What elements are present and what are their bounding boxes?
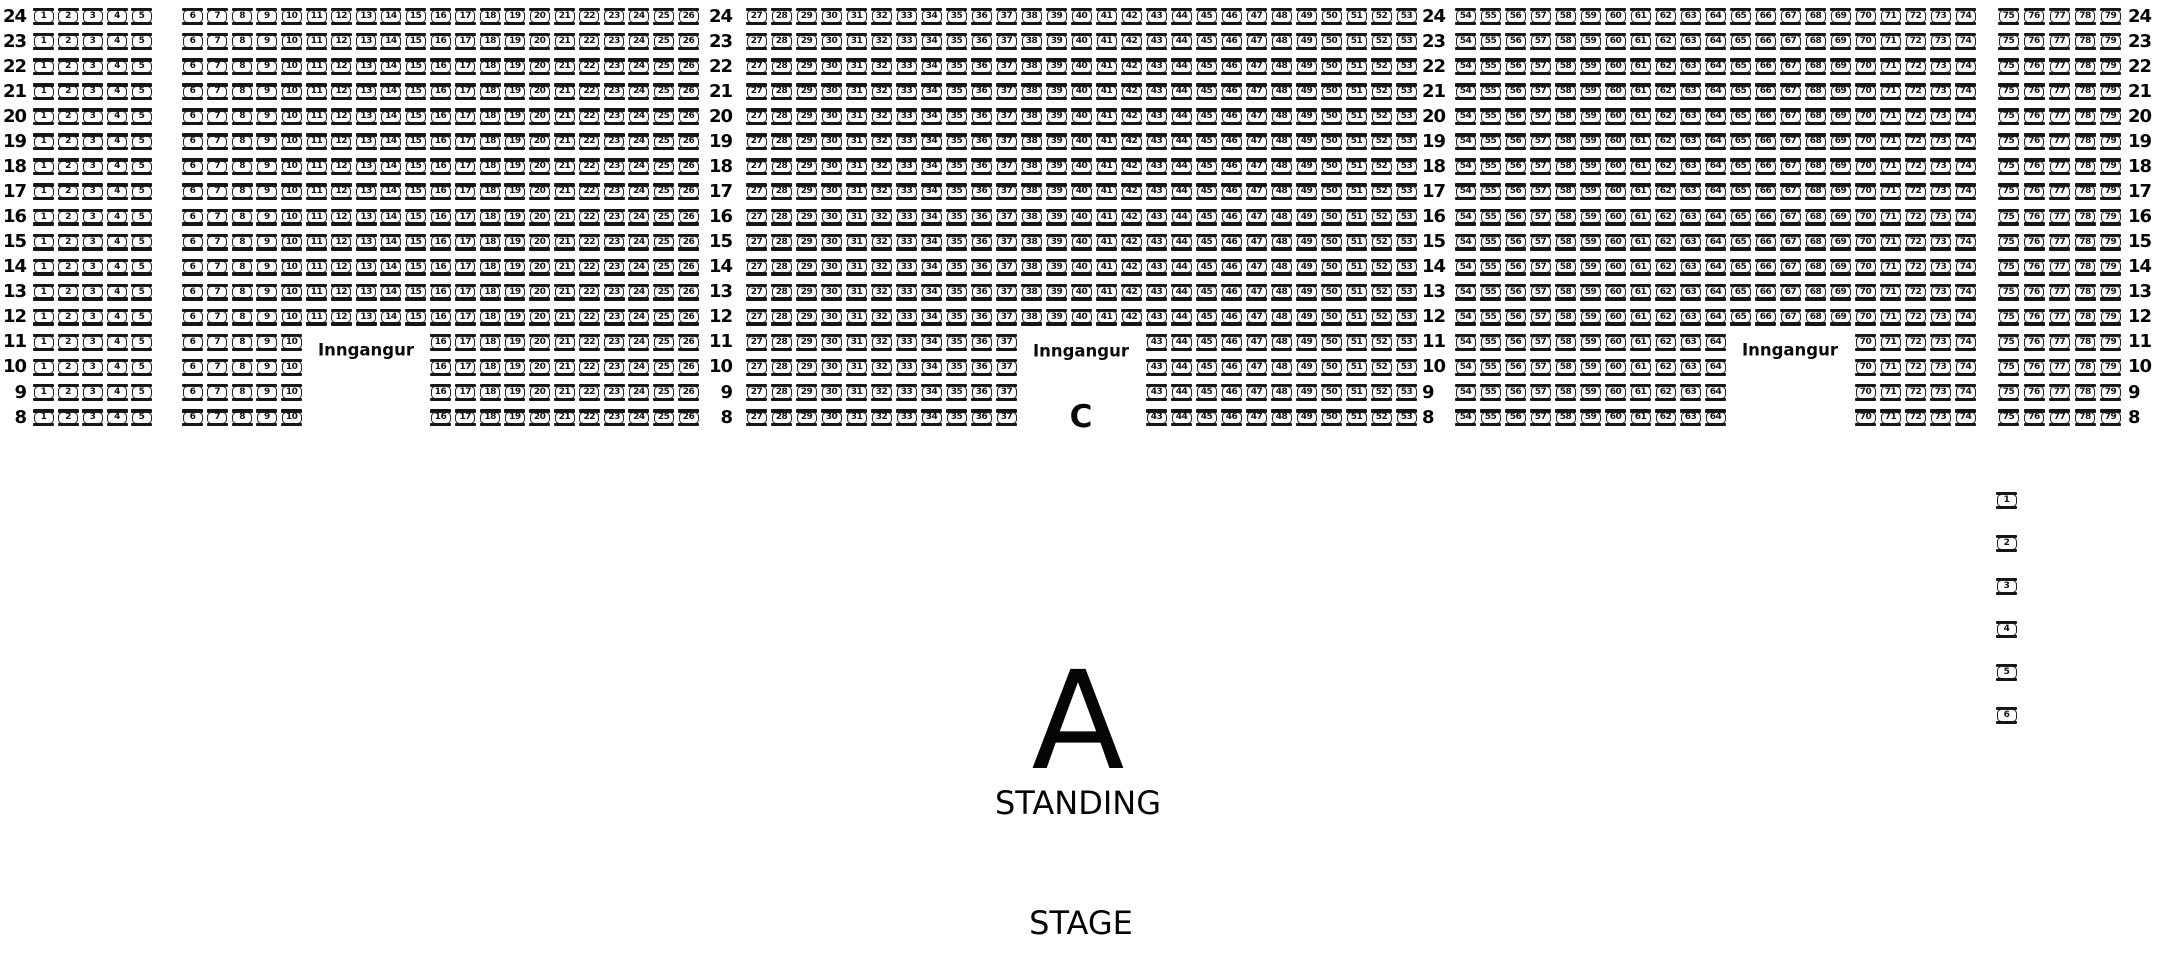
seat[interactable]: 25 <box>653 259 674 276</box>
seat[interactable]: 62 <box>1655 409 1676 426</box>
seat[interactable]: 38 <box>1021 234 1042 251</box>
seat[interactable]: 51 <box>1346 133 1367 150</box>
seat[interactable]: 46 <box>1221 133 1242 150</box>
seat[interactable]: 40 <box>1071 284 1092 301</box>
seat[interactable]: 36 <box>971 409 992 426</box>
seat[interactable]: 18 <box>480 284 501 301</box>
seat[interactable]: 60 <box>1605 33 1626 50</box>
seat[interactable]: 7 <box>207 359 228 376</box>
seat[interactable]: 75 <box>1998 183 2019 200</box>
seat[interactable]: 8 <box>232 284 253 301</box>
seat[interactable]: 26 <box>678 384 699 401</box>
seat[interactable]: 54 <box>1455 158 1476 175</box>
seat[interactable]: 56 <box>1505 384 1526 401</box>
seat[interactable]: 30 <box>821 83 842 100</box>
seat[interactable]: 40 <box>1071 8 1092 25</box>
seat[interactable]: 63 <box>1680 409 1701 426</box>
seat[interactable]: 45 <box>1196 183 1217 200</box>
seat[interactable]: 45 <box>1196 133 1217 150</box>
seat[interactable]: 7 <box>207 83 228 100</box>
seat[interactable]: 49 <box>1296 183 1317 200</box>
seat[interactable]: 62 <box>1655 259 1676 276</box>
seat[interactable]: 48 <box>1271 58 1292 75</box>
seat[interactable]: 20 <box>529 158 550 175</box>
seat[interactable]: 62 <box>1655 33 1676 50</box>
seat[interactable]: 9 <box>256 234 277 251</box>
seat[interactable]: 33 <box>896 309 917 326</box>
seat[interactable]: 35 <box>946 234 967 251</box>
seat[interactable]: 33 <box>896 8 917 25</box>
seat[interactable]: 72 <box>1905 108 1926 125</box>
seat[interactable]: 74 <box>1955 8 1976 25</box>
seat[interactable]: 17 <box>455 158 476 175</box>
seat[interactable]: 73 <box>1930 183 1951 200</box>
seat[interactable]: 71 <box>1880 158 1901 175</box>
seat[interactable]: 1 <box>33 284 54 301</box>
seat[interactable]: 26 <box>678 133 699 150</box>
seat[interactable]: 74 <box>1955 33 1976 50</box>
seat[interactable]: 45 <box>1196 409 1217 426</box>
seat[interactable]: 39 <box>1046 284 1067 301</box>
seat[interactable]: 4 <box>107 83 128 100</box>
seat[interactable]: 23 <box>604 384 625 401</box>
seat[interactable]: 75 <box>1998 259 2019 276</box>
seat[interactable]: 67 <box>1780 234 1801 251</box>
seat[interactable]: 23 <box>604 284 625 301</box>
seat[interactable]: 21 <box>554 309 575 326</box>
seat[interactable]: 17 <box>455 359 476 376</box>
seat[interactable]: 59 <box>1580 133 1601 150</box>
seat[interactable]: 21 <box>554 133 575 150</box>
seat[interactable]: 59 <box>1580 309 1601 326</box>
seat[interactable]: 48 <box>1271 8 1292 25</box>
seat[interactable]: 77 <box>2049 409 2070 426</box>
seat[interactable]: 79 <box>2100 409 2121 426</box>
seat[interactable]: 33 <box>896 334 917 351</box>
seat[interactable]: 8 <box>232 259 253 276</box>
seat[interactable]: 30 <box>821 234 842 251</box>
seat[interactable]: 22 <box>579 259 600 276</box>
seat[interactable]: 64 <box>1705 209 1726 226</box>
seat[interactable]: 28 <box>771 83 792 100</box>
seat[interactable]: 9 <box>256 108 277 125</box>
seat[interactable]: 21 <box>554 8 575 25</box>
seat[interactable]: 22 <box>579 83 600 100</box>
seat[interactable]: 69 <box>1830 133 1851 150</box>
seat[interactable]: 15 <box>405 209 426 226</box>
seat[interactable]: 77 <box>2049 234 2070 251</box>
seat[interactable]: 70 <box>1855 234 1876 251</box>
seat[interactable]: 31 <box>846 359 867 376</box>
seat[interactable]: 25 <box>653 83 674 100</box>
seat[interactable]: 33 <box>896 183 917 200</box>
seat[interactable]: 52 <box>1371 409 1392 426</box>
seat[interactable]: 62 <box>1655 183 1676 200</box>
seat[interactable]: 61 <box>1630 234 1651 251</box>
seat[interactable]: 74 <box>1955 183 1976 200</box>
seat[interactable]: 77 <box>2049 133 2070 150</box>
seat[interactable]: 44 <box>1171 133 1192 150</box>
seat[interactable]: 32 <box>871 158 892 175</box>
seat[interactable]: 37 <box>996 334 1017 351</box>
seat[interactable]: 37 <box>996 8 1017 25</box>
seat[interactable]: 11 <box>306 108 327 125</box>
seat[interactable]: 48 <box>1271 259 1292 276</box>
seat[interactable]: 24 <box>628 108 649 125</box>
seat[interactable]: 18 <box>480 259 501 276</box>
seat[interactable]: 44 <box>1171 284 1192 301</box>
seat[interactable]: 38 <box>1021 183 1042 200</box>
seat[interactable]: 3 <box>82 384 103 401</box>
seat[interactable]: 19 <box>504 359 525 376</box>
seat[interactable]: 69 <box>1830 309 1851 326</box>
seat[interactable]: 53 <box>1396 359 1417 376</box>
seat[interactable]: 33 <box>896 359 917 376</box>
seat[interactable]: 34 <box>921 183 942 200</box>
seat[interactable]: 50 <box>1321 8 1342 25</box>
seat[interactable]: 6 <box>182 209 203 226</box>
seat[interactable]: 36 <box>971 359 992 376</box>
seat[interactable]: 3 <box>82 158 103 175</box>
seat[interactable]: 2 <box>58 284 79 301</box>
seat[interactable]: 8 <box>232 83 253 100</box>
seat[interactable]: 69 <box>1830 234 1851 251</box>
seat[interactable]: 25 <box>653 359 674 376</box>
seat[interactable]: 44 <box>1171 409 1192 426</box>
seat[interactable]: 38 <box>1021 58 1042 75</box>
seat[interactable]: 61 <box>1630 58 1651 75</box>
seat[interactable]: 5 <box>131 183 152 200</box>
seat[interactable]: 21 <box>554 183 575 200</box>
seat[interactable]: 62 <box>1655 309 1676 326</box>
seat[interactable]: 66 <box>1755 58 1776 75</box>
seat[interactable]: 36 <box>971 33 992 50</box>
seat[interactable]: 32 <box>871 8 892 25</box>
seat[interactable]: 3 <box>82 33 103 50</box>
seat[interactable]: 32 <box>871 334 892 351</box>
seat[interactable]: 9 <box>256 209 277 226</box>
seat[interactable]: 12 <box>331 8 352 25</box>
seat[interactable]: 33 <box>896 409 917 426</box>
seat[interactable]: 1 <box>33 409 54 426</box>
seat[interactable]: 60 <box>1605 359 1626 376</box>
seat[interactable]: 28 <box>771 133 792 150</box>
seat[interactable]: 20 <box>529 33 550 50</box>
seat[interactable]: 75 <box>1998 384 2019 401</box>
seat[interactable]: 57 <box>1530 133 1551 150</box>
seat[interactable]: 5 <box>131 58 152 75</box>
seat[interactable]: 25 <box>653 209 674 226</box>
seat[interactable]: 66 <box>1755 209 1776 226</box>
seat[interactable]: 25 <box>653 309 674 326</box>
seat[interactable]: 64 <box>1705 284 1726 301</box>
seat[interactable]: 42 <box>1121 284 1142 301</box>
seat[interactable]: 5 <box>131 108 152 125</box>
seat[interactable]: 78 <box>2075 234 2096 251</box>
seat[interactable]: 8 <box>232 409 253 426</box>
seat[interactable]: 5 <box>131 409 152 426</box>
seat[interactable]: 77 <box>2049 83 2070 100</box>
seat[interactable]: 62 <box>1655 133 1676 150</box>
seat[interactable]: 15 <box>405 58 426 75</box>
seat[interactable]: 21 <box>554 158 575 175</box>
seat[interactable]: 38 <box>1021 209 1042 226</box>
seat[interactable]: 68 <box>1805 133 1826 150</box>
seat[interactable]: 54 <box>1455 334 1476 351</box>
seat[interactable]: 38 <box>1021 83 1042 100</box>
seat[interactable]: 27 <box>746 234 767 251</box>
seat[interactable]: 16 <box>430 108 451 125</box>
seat[interactable]: 24 <box>628 83 649 100</box>
seat[interactable]: 78 <box>2075 183 2096 200</box>
seat[interactable]: 62 <box>1655 8 1676 25</box>
seat[interactable]: 16 <box>430 334 451 351</box>
seat[interactable]: 11 <box>306 8 327 25</box>
seat[interactable]: 6 <box>182 309 203 326</box>
seat[interactable]: 78 <box>2075 284 2096 301</box>
seat[interactable]: 3 <box>82 209 103 226</box>
seat[interactable]: 46 <box>1221 409 1242 426</box>
seat[interactable]: 71 <box>1880 234 1901 251</box>
seat[interactable]: 12 <box>331 209 352 226</box>
seat[interactable]: 28 <box>771 209 792 226</box>
seat[interactable]: 29 <box>796 309 817 326</box>
seat[interactable]: 2 <box>58 33 79 50</box>
seat[interactable]: 16 <box>430 359 451 376</box>
seat[interactable]: 19 <box>504 133 525 150</box>
seat[interactable]: 2 <box>58 183 79 200</box>
seat[interactable]: 6 <box>182 33 203 50</box>
seat[interactable]: 26 <box>678 83 699 100</box>
seat[interactable]: 19 <box>504 8 525 25</box>
seat[interactable]: 37 <box>996 33 1017 50</box>
seat[interactable]: 27 <box>746 183 767 200</box>
seat[interactable]: 58 <box>1555 58 1576 75</box>
seat[interactable]: 13 <box>356 183 377 200</box>
seat[interactable]: 56 <box>1505 108 1526 125</box>
seat[interactable]: 16 <box>430 58 451 75</box>
seat[interactable]: 66 <box>1755 33 1776 50</box>
seat[interactable]: 20 <box>529 108 550 125</box>
seat[interactable]: 49 <box>1296 108 1317 125</box>
seat[interactable]: 25 <box>653 158 674 175</box>
seat[interactable]: 50 <box>1321 384 1342 401</box>
seat[interactable]: 13 <box>356 309 377 326</box>
seat[interactable]: 10 <box>281 108 302 125</box>
seat[interactable]: 61 <box>1630 133 1651 150</box>
seat[interactable]: 55 <box>1480 309 1501 326</box>
seat[interactable]: 30 <box>821 209 842 226</box>
seat[interactable]: 27 <box>746 158 767 175</box>
seat[interactable]: 52 <box>1371 359 1392 376</box>
seat[interactable]: 54 <box>1455 83 1476 100</box>
seat[interactable]: 56 <box>1505 83 1526 100</box>
seat[interactable]: 75 <box>1998 8 2019 25</box>
seat[interactable]: 20 <box>529 209 550 226</box>
seat[interactable]: 65 <box>1730 58 1751 75</box>
seat[interactable]: 52 <box>1371 384 1392 401</box>
seat[interactable]: 20 <box>529 384 550 401</box>
seat[interactable]: 50 <box>1321 359 1342 376</box>
seat[interactable]: 28 <box>771 409 792 426</box>
seat[interactable]: 46 <box>1221 334 1242 351</box>
seat[interactable]: 38 <box>1021 158 1042 175</box>
seat[interactable]: 57 <box>1530 409 1551 426</box>
seat[interactable]: 50 <box>1321 234 1342 251</box>
seat[interactable]: 73 <box>1930 83 1951 100</box>
seat[interactable]: 10 <box>281 259 302 276</box>
seat[interactable]: 42 <box>1121 8 1142 25</box>
seat[interactable]: 2 <box>58 234 79 251</box>
seat[interactable]: 61 <box>1630 33 1651 50</box>
seat[interactable]: 19 <box>504 259 525 276</box>
seat[interactable]: 43 <box>1146 158 1167 175</box>
seat[interactable]: 69 <box>1830 83 1851 100</box>
seat[interactable]: 70 <box>1855 8 1876 25</box>
seat[interactable]: 10 <box>281 158 302 175</box>
seat[interactable]: 18 <box>480 108 501 125</box>
seat[interactable]: 79 <box>2100 359 2121 376</box>
seat[interactable]: 25 <box>653 284 674 301</box>
seat[interactable]: 42 <box>1121 108 1142 125</box>
seat[interactable]: 28 <box>771 58 792 75</box>
seat[interactable]: 12 <box>331 108 352 125</box>
seat[interactable]: 64 <box>1705 384 1726 401</box>
seat[interactable]: 9 <box>256 284 277 301</box>
seat[interactable]: 7 <box>207 309 228 326</box>
seat[interactable]: 24 <box>628 33 649 50</box>
seat[interactable]: 47 <box>1246 83 1267 100</box>
seat[interactable]: 18 <box>480 309 501 326</box>
seat[interactable]: 1 <box>33 108 54 125</box>
seat[interactable]: 26 <box>678 33 699 50</box>
seat[interactable]: 60 <box>1605 108 1626 125</box>
seat[interactable]: 32 <box>871 183 892 200</box>
seat[interactable]: 68 <box>1805 234 1826 251</box>
seat[interactable]: 49 <box>1296 133 1317 150</box>
seat[interactable]: 9 <box>256 259 277 276</box>
seat[interactable]: 40 <box>1071 209 1092 226</box>
seat[interactable]: 60 <box>1605 259 1626 276</box>
seat[interactable]: 22 <box>579 183 600 200</box>
seat[interactable]: 66 <box>1755 8 1776 25</box>
seat[interactable]: 45 <box>1196 33 1217 50</box>
seat[interactable]: 75 <box>1998 108 2019 125</box>
seat[interactable]: 51 <box>1346 259 1367 276</box>
seat[interactable]: 2 <box>58 409 79 426</box>
seat[interactable]: 60 <box>1605 58 1626 75</box>
seat[interactable]: 25 <box>653 33 674 50</box>
seat[interactable]: 16 <box>430 183 451 200</box>
seat[interactable]: 73 <box>1930 259 1951 276</box>
seat[interactable]: 11 <box>306 158 327 175</box>
seat[interactable]: 14 <box>380 234 401 251</box>
seat[interactable]: 57 <box>1530 8 1551 25</box>
seat[interactable]: 52 <box>1371 108 1392 125</box>
seat[interactable]: 53 <box>1396 384 1417 401</box>
seat[interactable]: 2 <box>58 334 79 351</box>
seat[interactable]: 64 <box>1705 359 1726 376</box>
seat[interactable]: 19 <box>504 284 525 301</box>
seat[interactable]: 76 <box>2024 209 2045 226</box>
seat[interactable]: 55 <box>1480 334 1501 351</box>
seat[interactable]: 3 <box>82 58 103 75</box>
seat[interactable]: 45 <box>1196 359 1217 376</box>
seat[interactable]: 32 <box>871 33 892 50</box>
seat[interactable]: 54 <box>1455 234 1476 251</box>
seat[interactable]: 27 <box>746 359 767 376</box>
seat[interactable]: 31 <box>846 58 867 75</box>
seat[interactable]: 72 <box>1905 309 1926 326</box>
seat[interactable]: 70 <box>1855 409 1876 426</box>
seat[interactable]: 67 <box>1780 259 1801 276</box>
seat[interactable]: 78 <box>2075 334 2096 351</box>
seat[interactable]: 26 <box>678 108 699 125</box>
seat[interactable]: 71 <box>1880 259 1901 276</box>
seat[interactable]: 65 <box>1730 183 1751 200</box>
seat[interactable]: 26 <box>678 58 699 75</box>
seat[interactable]: 29 <box>796 259 817 276</box>
seat[interactable]: 69 <box>1830 58 1851 75</box>
seat[interactable]: 78 <box>2075 58 2096 75</box>
seat[interactable]: 7 <box>207 284 228 301</box>
seat[interactable]: 73 <box>1930 309 1951 326</box>
seat[interactable]: 9 <box>256 83 277 100</box>
seat[interactable]: 47 <box>1246 108 1267 125</box>
seat[interactable]: 34 <box>921 58 942 75</box>
seat[interactable]: 16 <box>430 133 451 150</box>
seat[interactable]: 60 <box>1605 384 1626 401</box>
seat[interactable]: 56 <box>1505 409 1526 426</box>
seat[interactable]: 30 <box>821 133 842 150</box>
seat[interactable]: 55 <box>1480 108 1501 125</box>
seat[interactable]: 74 <box>1955 58 1976 75</box>
seat[interactable]: 2 <box>58 83 79 100</box>
seat[interactable]: 60 <box>1605 234 1626 251</box>
seat[interactable]: 16 <box>430 309 451 326</box>
seat[interactable]: 17 <box>455 384 476 401</box>
seat[interactable]: 19 <box>504 158 525 175</box>
seat[interactable]: 70 <box>1855 108 1876 125</box>
seat[interactable]: 35 <box>946 8 967 25</box>
seat[interactable]: 74 <box>1955 83 1976 100</box>
seat[interactable]: 22 <box>579 33 600 50</box>
seat[interactable]: 18 <box>480 359 501 376</box>
seat[interactable]: 21 <box>554 334 575 351</box>
seat[interactable]: 45 <box>1196 259 1217 276</box>
seat[interactable]: 79 <box>2100 108 2121 125</box>
seat[interactable]: 7 <box>207 384 228 401</box>
seat[interactable]: 35 <box>946 384 967 401</box>
seat[interactable]: 34 <box>921 384 942 401</box>
seat[interactable]: 79 <box>2100 309 2121 326</box>
seat[interactable]: 71 <box>1880 108 1901 125</box>
seat[interactable]: 8 <box>232 234 253 251</box>
seat[interactable]: 65 <box>1730 133 1751 150</box>
seat[interactable]: 18 <box>480 234 501 251</box>
seat[interactable]: 12 <box>331 83 352 100</box>
seat[interactable]: 1 <box>33 309 54 326</box>
seat[interactable]: 13 <box>356 83 377 100</box>
seat[interactable]: 29 <box>796 359 817 376</box>
seat[interactable]: 15 <box>405 234 426 251</box>
seat[interactable]: 63 <box>1680 234 1701 251</box>
seat[interactable]: 7 <box>207 234 228 251</box>
seat[interactable]: 49 <box>1296 158 1317 175</box>
seat[interactable]: 57 <box>1530 183 1551 200</box>
seat[interactable]: 51 <box>1346 183 1367 200</box>
seat[interactable]: 53 <box>1396 8 1417 25</box>
